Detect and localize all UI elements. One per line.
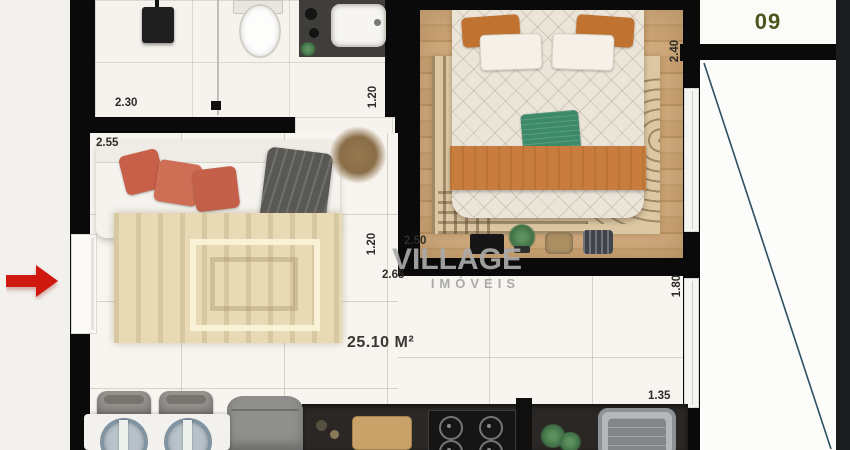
toilet-icon bbox=[239, 4, 281, 58]
entrance-arrow-icon bbox=[6, 262, 60, 300]
shower-glass bbox=[217, 0, 219, 115]
living-rug bbox=[114, 213, 342, 343]
sofa-pillow bbox=[192, 165, 241, 212]
burner-icon bbox=[439, 440, 463, 450]
sink-basin bbox=[608, 418, 666, 450]
burner-icon bbox=[479, 440, 503, 450]
fridge-icon bbox=[227, 396, 303, 450]
living-window bbox=[684, 278, 699, 408]
entrance-door bbox=[71, 234, 97, 334]
measurement-bathroom-width: 2.30 bbox=[115, 97, 137, 109]
measurement-bedroom-depth: 2.40 bbox=[669, 31, 681, 71]
measurement-living-run: 2.65 bbox=[382, 269, 404, 281]
pampas-plant-icon bbox=[330, 126, 386, 184]
counter-decor bbox=[330, 430, 339, 439]
burner-icon bbox=[479, 416, 503, 440]
napkin bbox=[183, 420, 192, 450]
shower-icon bbox=[142, 7, 174, 43]
basket-icon bbox=[583, 230, 613, 254]
measurement-kitchen-run: 1.35 bbox=[648, 390, 670, 402]
plant-pot bbox=[514, 246, 530, 253]
corridor-wall bbox=[680, 44, 850, 61]
basket-icon bbox=[545, 232, 573, 254]
vanity-accessory bbox=[305, 8, 317, 20]
exterior-right-edge bbox=[836, 0, 850, 450]
bed-runner bbox=[450, 146, 646, 190]
vanity-plant-icon bbox=[300, 42, 316, 56]
measurement-living-width: 2.55 bbox=[96, 137, 118, 149]
cutting-board-icon bbox=[352, 416, 412, 450]
unit-number-badge: 09 bbox=[700, 0, 836, 44]
measurement-hall-passage: 1.20 bbox=[366, 224, 378, 264]
faucet-icon bbox=[374, 19, 381, 26]
greens-icon bbox=[558, 432, 582, 450]
shower-glass-handle bbox=[211, 101, 221, 110]
kitchen-sink-icon bbox=[598, 408, 676, 450]
exterior-left bbox=[0, 0, 70, 450]
bed-pillow-white bbox=[551, 33, 614, 71]
bedroom-window bbox=[684, 88, 699, 232]
measurement-living-depth: 1.80 bbox=[671, 266, 683, 306]
counter-decor bbox=[316, 420, 327, 431]
corridor-area bbox=[700, 60, 836, 450]
bed-pillow-white bbox=[479, 33, 542, 71]
burner-icon bbox=[439, 416, 463, 440]
measurement-bathroom-passage: 1.20 bbox=[367, 77, 379, 117]
floor-plan: 09 2.30 1.20 2.55 1.20 2.50 2.65 2.40 1.… bbox=[0, 0, 850, 450]
cooktop-icon bbox=[428, 410, 516, 450]
counter-divider bbox=[516, 398, 532, 450]
vanity-accessory bbox=[309, 28, 319, 38]
napkin bbox=[119, 420, 128, 450]
rug-maze-pattern bbox=[210, 257, 298, 311]
measurement-bedroom-width: 2.50 bbox=[404, 235, 426, 247]
unit-number: 09 bbox=[755, 9, 781, 35]
area-label: 25.10 M² bbox=[347, 334, 414, 352]
section-diagonal-line bbox=[700, 60, 836, 450]
tv-icon bbox=[470, 234, 504, 254]
